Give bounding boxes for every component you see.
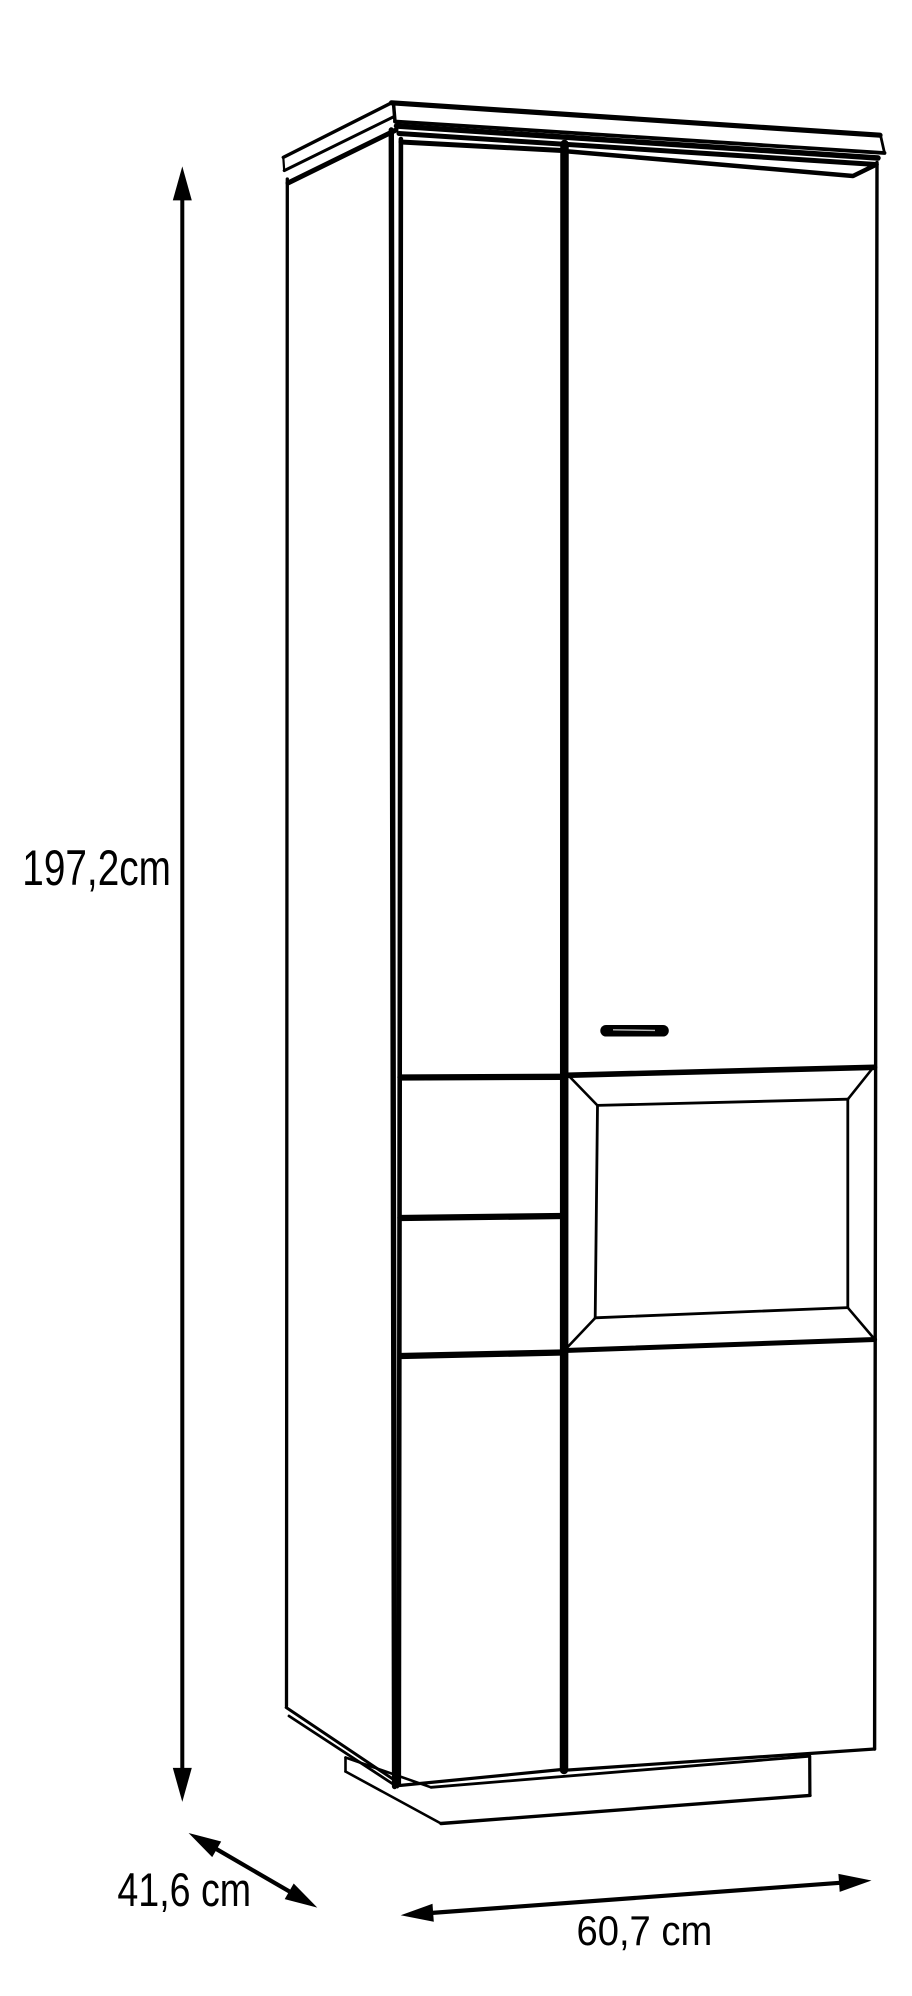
svg-text:197,2cm: 197,2cm	[22, 841, 171, 896]
svg-text:41,6 cm: 41,6 cm	[117, 1864, 251, 1917]
svg-text:60,7 cm: 60,7 cm	[577, 1907, 713, 1954]
